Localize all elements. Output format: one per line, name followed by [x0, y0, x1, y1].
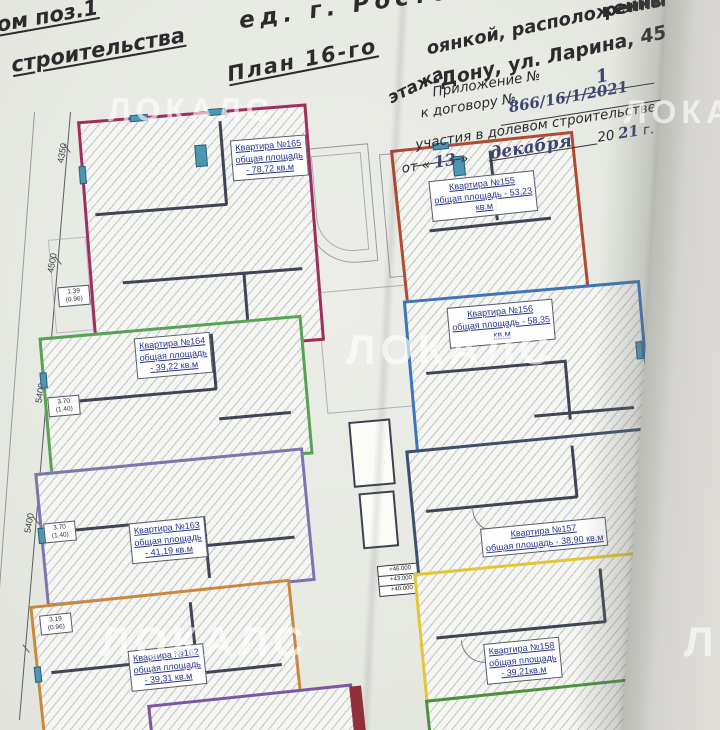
wall-line: [57, 387, 217, 403]
apartment-165-label: Квартира №165 общая площадь - 78,72 кв.м: [230, 135, 309, 182]
apartment-164-label: Квартира №164 общая площадь - 39,22 кв.м: [134, 332, 213, 379]
wall-line: [123, 267, 303, 284]
balcony-dim-164: 3.70 (1.40): [47, 395, 81, 417]
header-fragment-left-2: строительства: [9, 23, 186, 77]
wall-line: [219, 411, 291, 420]
window-mark: [79, 166, 87, 184]
window-mark: [194, 144, 208, 167]
wall-line: [207, 536, 295, 547]
date-close-quote: »: [459, 151, 470, 168]
wall-line: [571, 446, 578, 498]
header-plan-line: План 16-го: [225, 34, 379, 87]
apartment-158-label: Квартира №158 общая площадь - 39,21кв.м: [483, 637, 562, 685]
wall-line: [95, 203, 227, 216]
balcony-dim-163: 3.70 (1.40): [43, 521, 77, 544]
watermark-center: ЛОКАЛС: [346, 326, 554, 374]
date-prefix: от «: [400, 157, 431, 177]
wall-line: [218, 121, 227, 205]
watermark-top-right: ЛОКАЛС: [624, 94, 720, 131]
apartment-163-label: Квартира №163 общая площадь - 41,19 кв.м: [128, 516, 207, 564]
window-mark: [39, 372, 47, 389]
watermark-bottom-left: ЛОКАЛС: [100, 618, 308, 666]
watermark-top-left: ЛОКАЛС: [108, 92, 274, 129]
watermark-bottom-right: ЛОКАЛС: [684, 618, 720, 666]
window-mark: [34, 666, 43, 683]
balcony-dim-162: 3.19 (0.96): [39, 612, 73, 635]
wall-line: [426, 495, 578, 512]
date-day-handwritten: 13: [432, 150, 457, 172]
photographed-floor-plan-page: ом поз.1 строительства ед. г. Ростов Пла…: [0, 0, 720, 730]
dimension-5400-b: 5400: [22, 512, 35, 533]
dimension-rail-line-2: [0, 112, 35, 724]
apartment-155-label: Квартира №155 общая площадь - 53,23 кв.м: [428, 170, 538, 222]
header-city-fragment: ед. г. Ростов: [237, 0, 473, 34]
balcony-dim-165: 1.39 (0.96): [57, 285, 91, 307]
header-fragment-left-1: ом поз.1: [0, 0, 100, 37]
